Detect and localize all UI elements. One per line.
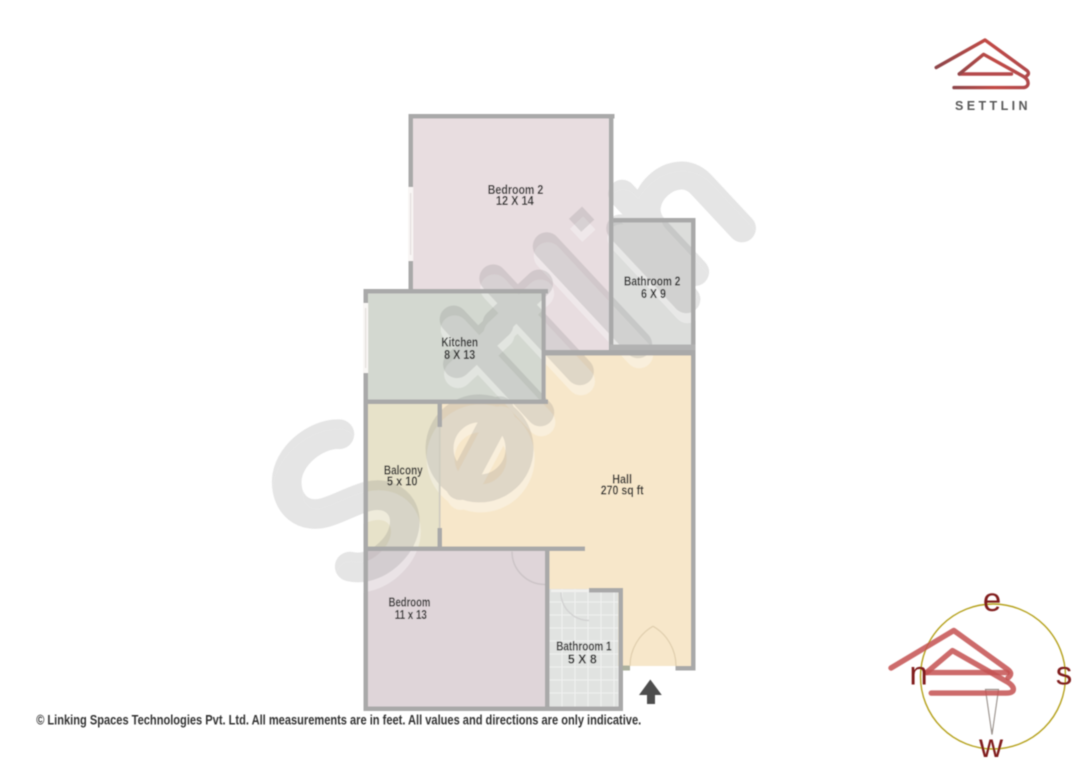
svg-text:w: w xyxy=(978,727,1003,764)
svg-text:12 X 14: 12 X 14 xyxy=(496,193,534,208)
svg-text:© Linking Spaces Technologies: © Linking Spaces Technologies Pvt. Ltd. … xyxy=(36,712,641,728)
svg-text:5 x 10: 5 x 10 xyxy=(387,473,418,488)
svg-text:s: s xyxy=(1056,655,1073,692)
svg-text:n: n xyxy=(909,655,927,692)
svg-text:5 X 8: 5 X 8 xyxy=(568,652,597,667)
svg-text:8 X 13: 8 X 13 xyxy=(444,347,475,362)
svg-text:6 X 9: 6 X 9 xyxy=(641,286,666,301)
svg-text:11 x 13: 11 x 13 xyxy=(395,607,427,622)
svg-text:SETTLIN: SETTLIN xyxy=(955,99,1031,113)
svg-text:270 sq ft: 270 sq ft xyxy=(601,483,644,498)
svg-text:e: e xyxy=(983,581,1001,618)
